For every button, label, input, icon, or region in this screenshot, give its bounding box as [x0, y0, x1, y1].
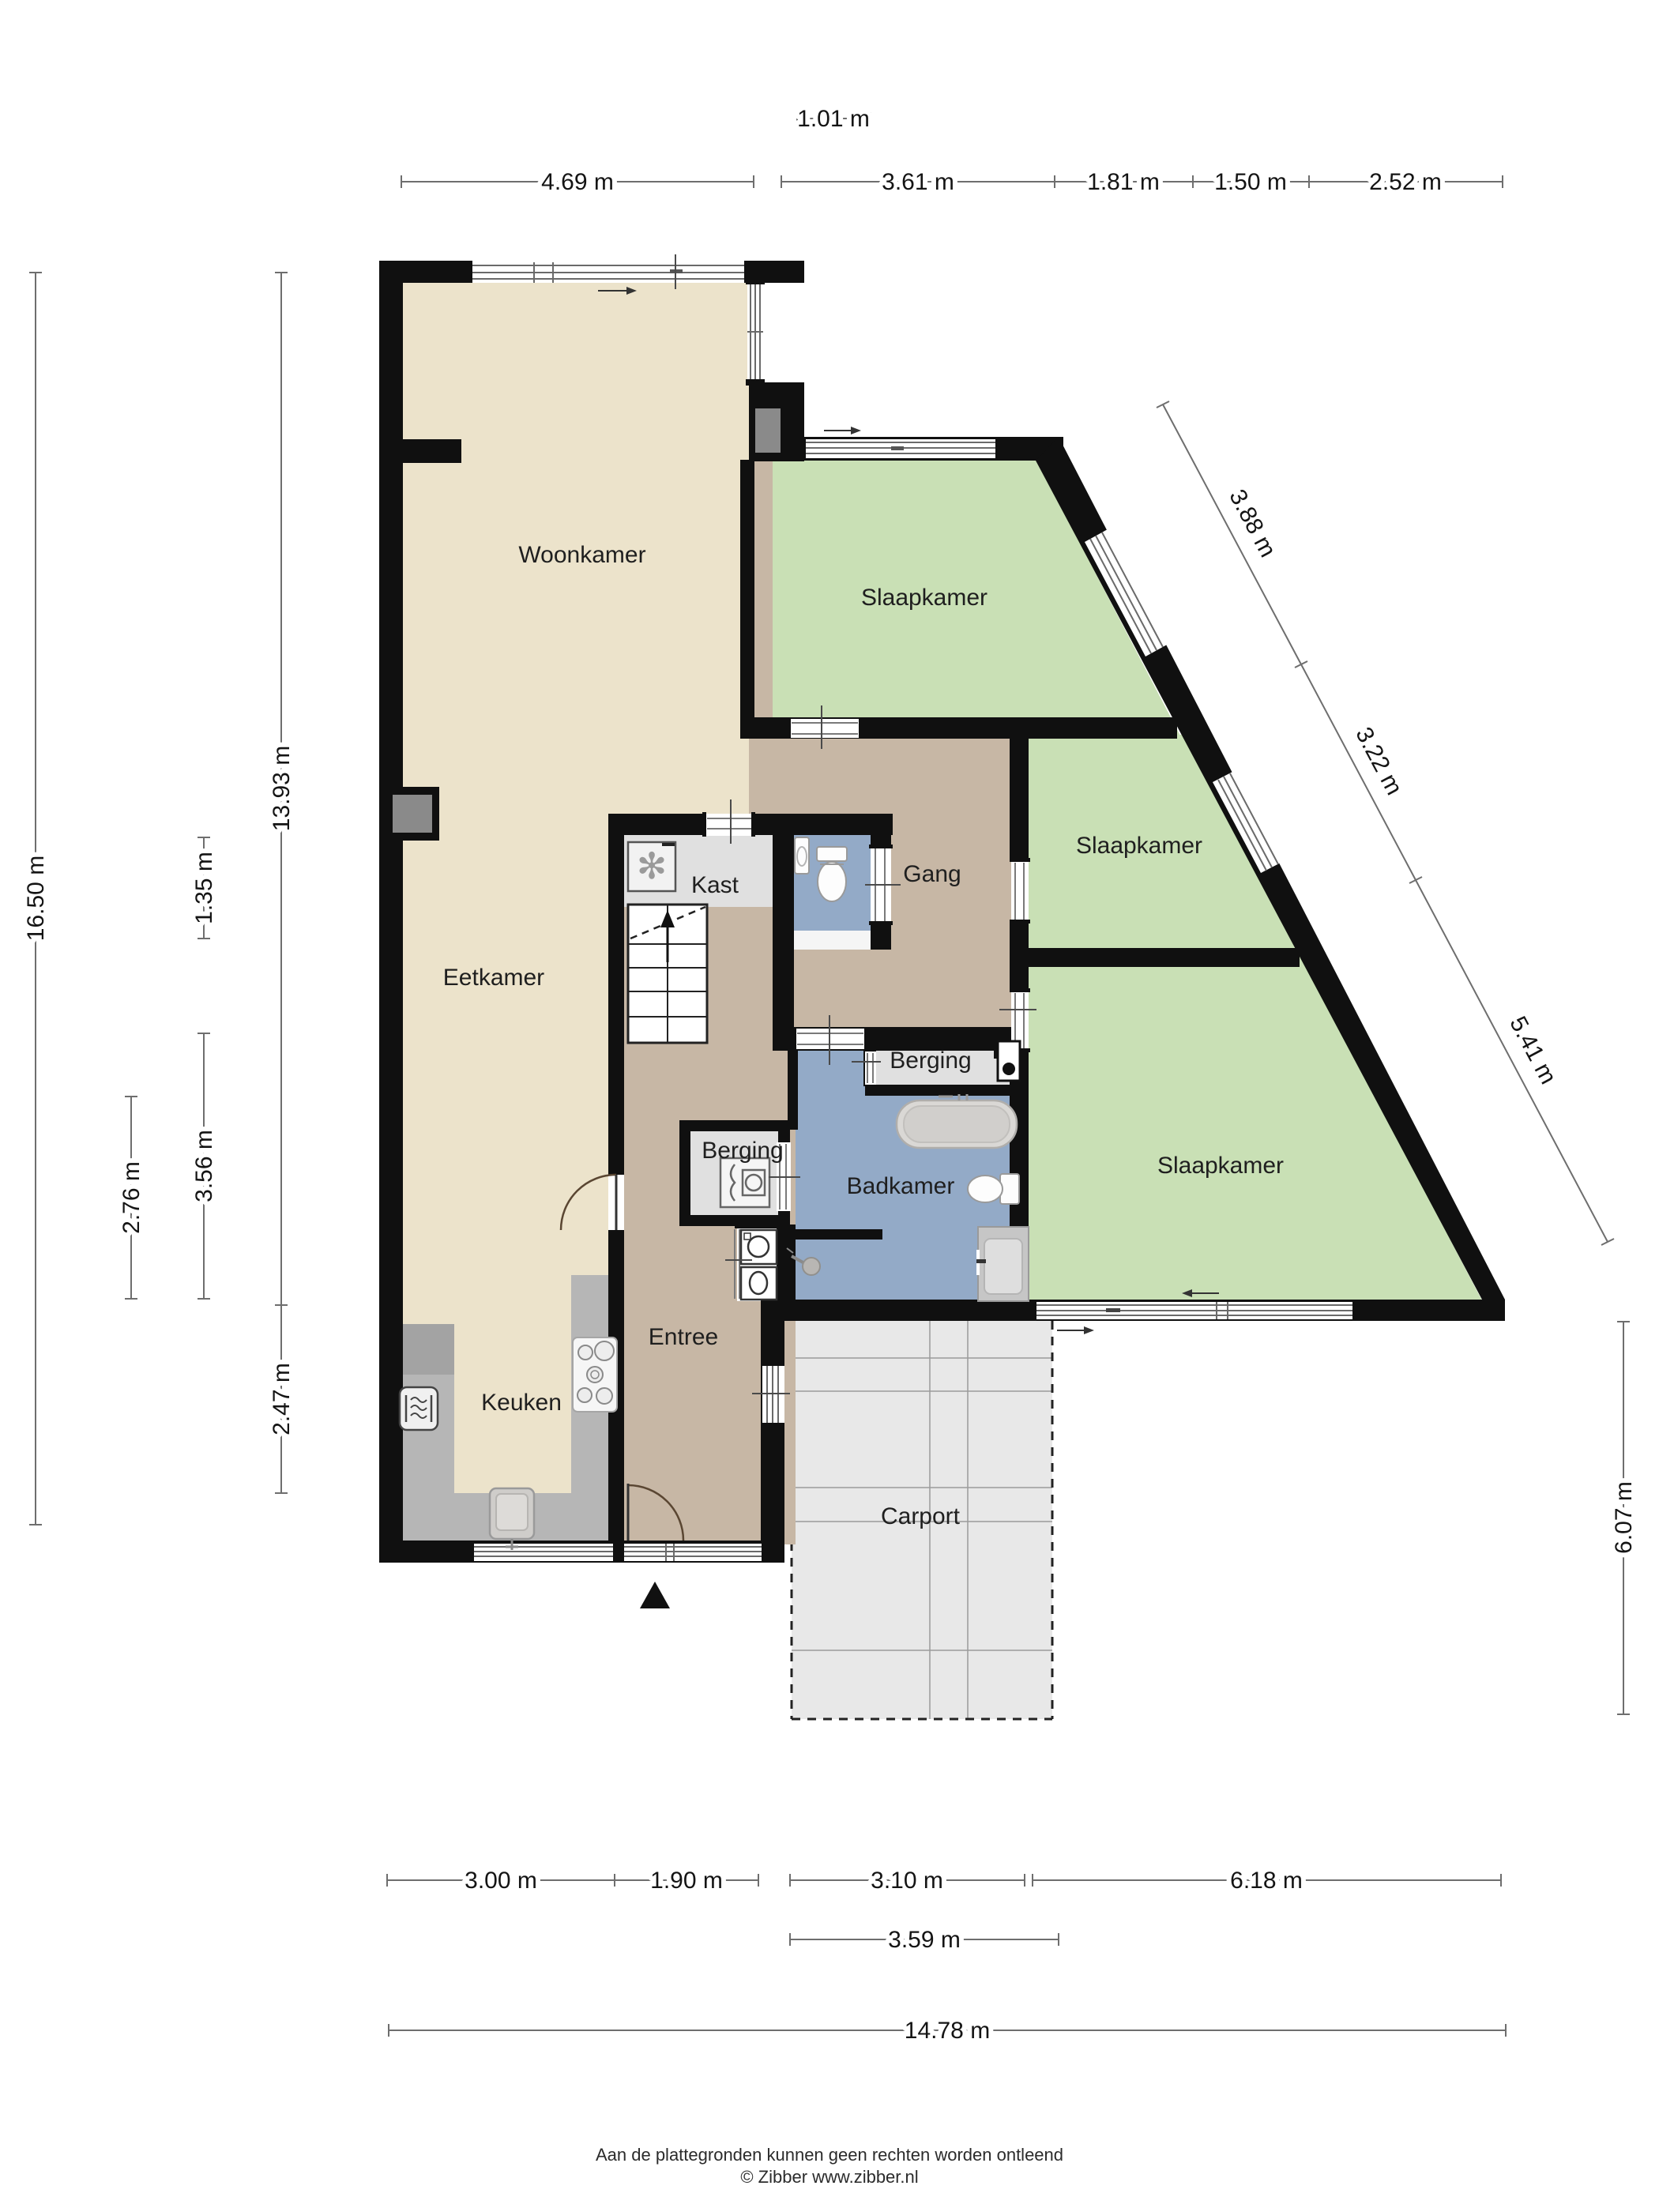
dim-left-column: 16.50 m 2.76 m 1.35 m 3.56 m 13.93 m 2.4…: [23, 273, 295, 1525]
footer-credit: © Zibber www.zibber.nl: [740, 2167, 918, 2187]
window-bedroom1-top: [806, 439, 995, 458]
entrance-arrow: [640, 1582, 670, 1608]
dim-label: 5.41 m: [1504, 1012, 1561, 1088]
dim-label: 1.01 m: [797, 106, 870, 132]
door-kast: [702, 812, 755, 837]
dim-label: 1.35 m: [191, 852, 217, 924]
dim-label: 1.90 m: [650, 1868, 723, 1894]
oven-icon: [400, 1387, 438, 1430]
dim-top-101: 1.01 m: [797, 106, 871, 132]
room-label-kast: Kast: [691, 872, 739, 898]
bath-toilet-icon: [968, 1174, 1019, 1204]
dim-label: 6.07 m: [1611, 1481, 1637, 1554]
stairs: [628, 905, 707, 1043]
dim-label: 3.22 m: [1350, 723, 1407, 799]
room-label-badkamer: Badkamer: [847, 1173, 955, 1199]
boiler-icon: [994, 1041, 1020, 1081]
stove-icon: [573, 1337, 617, 1412]
dim-label: 3.61 m: [882, 169, 954, 195]
window-entree-bottom: [624, 1544, 762, 1561]
door-bedroom1: [787, 717, 863, 739]
door-bedroom2: [1010, 858, 1030, 924]
room-label-gang: Gang: [903, 861, 961, 887]
footer: Aan de plattegronden kunnen geen rechten…: [596, 2145, 1063, 2187]
shower-partition: [788, 1229, 882, 1240]
footer-disclaimer: Aan de plattegronden kunnen geen rechten…: [596, 2145, 1063, 2165]
living-dining-stub-wall: [379, 439, 461, 463]
room-label-berging1: Berging: [702, 1138, 783, 1164]
room-label-eetkamer: Eetkamer: [443, 965, 544, 991]
window-arrow-bedroom3-right: [1057, 1326, 1094, 1334]
dim-label: 1.50 m: [1214, 169, 1287, 195]
window-top: [472, 262, 744, 283]
dryer-icon: [720, 1158, 769, 1207]
room-label-berging2: Berging: [890, 1048, 971, 1074]
dim-label: 3.56 m: [191, 1130, 217, 1202]
room-label-woonkamer: Woonkamer: [518, 542, 645, 568]
dim-label: 1.81 m: [1087, 169, 1160, 195]
dim-right-column: 6.07 m: [1611, 1322, 1637, 1714]
dim-label: 14.78 m: [905, 2018, 990, 2044]
wc-toilet-icon: [817, 847, 847, 901]
dim-label: 2.47 m: [269, 1363, 295, 1435]
dim-bottom-rows: 3.00 m 1.90 m 3.10 m 6.18 m 3.59 m 14.78…: [387, 1868, 1506, 2044]
dim-label: 4.69 m: [541, 169, 614, 195]
room-label-entree: Entree: [649, 1324, 718, 1350]
dim-label: 2.76 m: [118, 1161, 145, 1234]
dim-label: 3.10 m: [871, 1868, 943, 1894]
dim-label: 2.52 m: [1369, 169, 1442, 195]
bathtub-icon: [897, 1094, 1017, 1148]
dim-top-row: 4.69 m 3.61 m 1.81 m 1.50 m 2.52 m: [401, 169, 1503, 195]
shower-icon: [976, 1227, 1029, 1301]
radiator-block: [386, 787, 439, 841]
dim-label: 16.50 m: [23, 856, 49, 941]
window-arrow-bedroom1: [824, 427, 861, 434]
door-berging2: [865, 1051, 876, 1085]
dim-label: 3.59 m: [888, 1927, 961, 1953]
chimney-block: [755, 408, 781, 453]
fridge-icon: ✻: [628, 842, 675, 891]
window-right-upper: [746, 278, 765, 386]
toilet-sink-icon: [795, 837, 809, 874]
room-label-carport: Carport: [881, 1503, 961, 1529]
room-label-keuken: Keuken: [481, 1390, 562, 1416]
window-bedroom3-bottom: [1036, 1302, 1352, 1319]
room-label-slaapkamer3: Slaapkamer: [1157, 1153, 1284, 1179]
dim-label: 3.00 m: [465, 1868, 537, 1894]
svg-text:✻: ✻: [637, 845, 668, 887]
room-label-slaapkamer2: Slaapkamer: [1076, 833, 1202, 859]
washer-dryer-stack-icon: [741, 1230, 777, 1300]
dim-label: 6.18 m: [1230, 1868, 1303, 1894]
dim-label: 3.88 m: [1224, 485, 1281, 561]
floorplan-canvas: ✻: [0, 0, 1659, 2212]
window-kitchen-bottom: [474, 1544, 613, 1561]
dim-label: 13.93 m: [269, 746, 295, 831]
room-label-slaapkamer1: Slaapkamer: [861, 585, 987, 611]
